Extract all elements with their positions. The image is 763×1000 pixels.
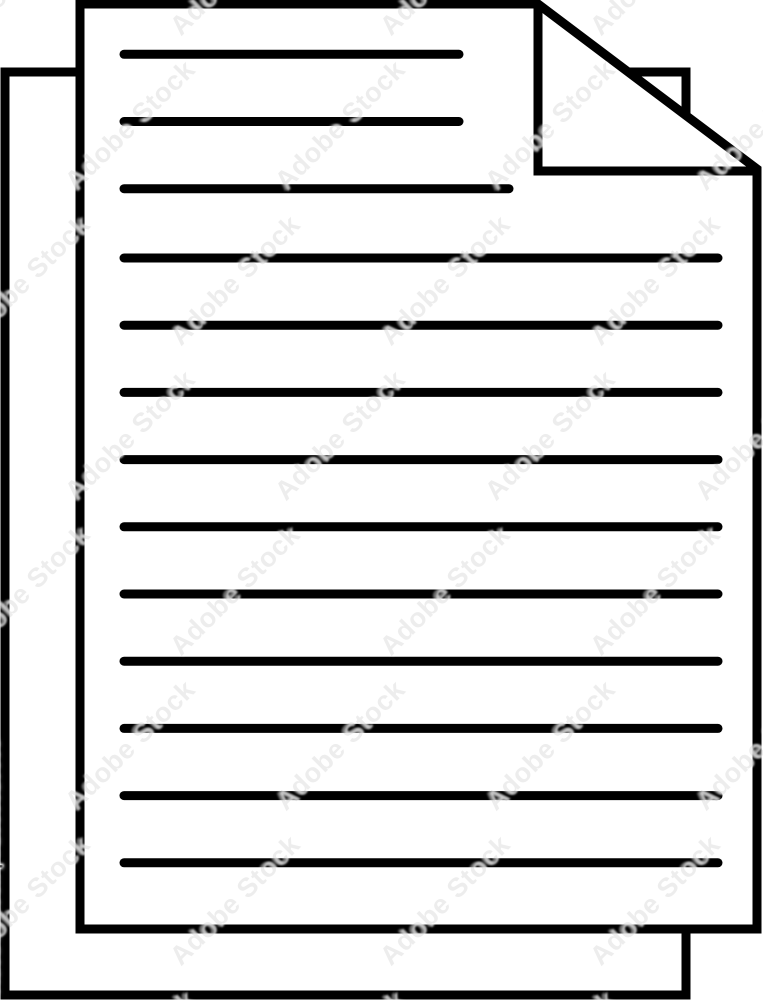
front-page bbox=[80, 4, 757, 929]
stock-image-canvas: Adobe StockAdobe StockAdobe StockAdobe S… bbox=[0, 0, 763, 1000]
document-icon-svg bbox=[0, 0, 763, 1000]
stock-attribution-label: Adobe Stock | #1680815809 bbox=[0, 738, 4, 994]
document-icon bbox=[0, 0, 763, 1000]
